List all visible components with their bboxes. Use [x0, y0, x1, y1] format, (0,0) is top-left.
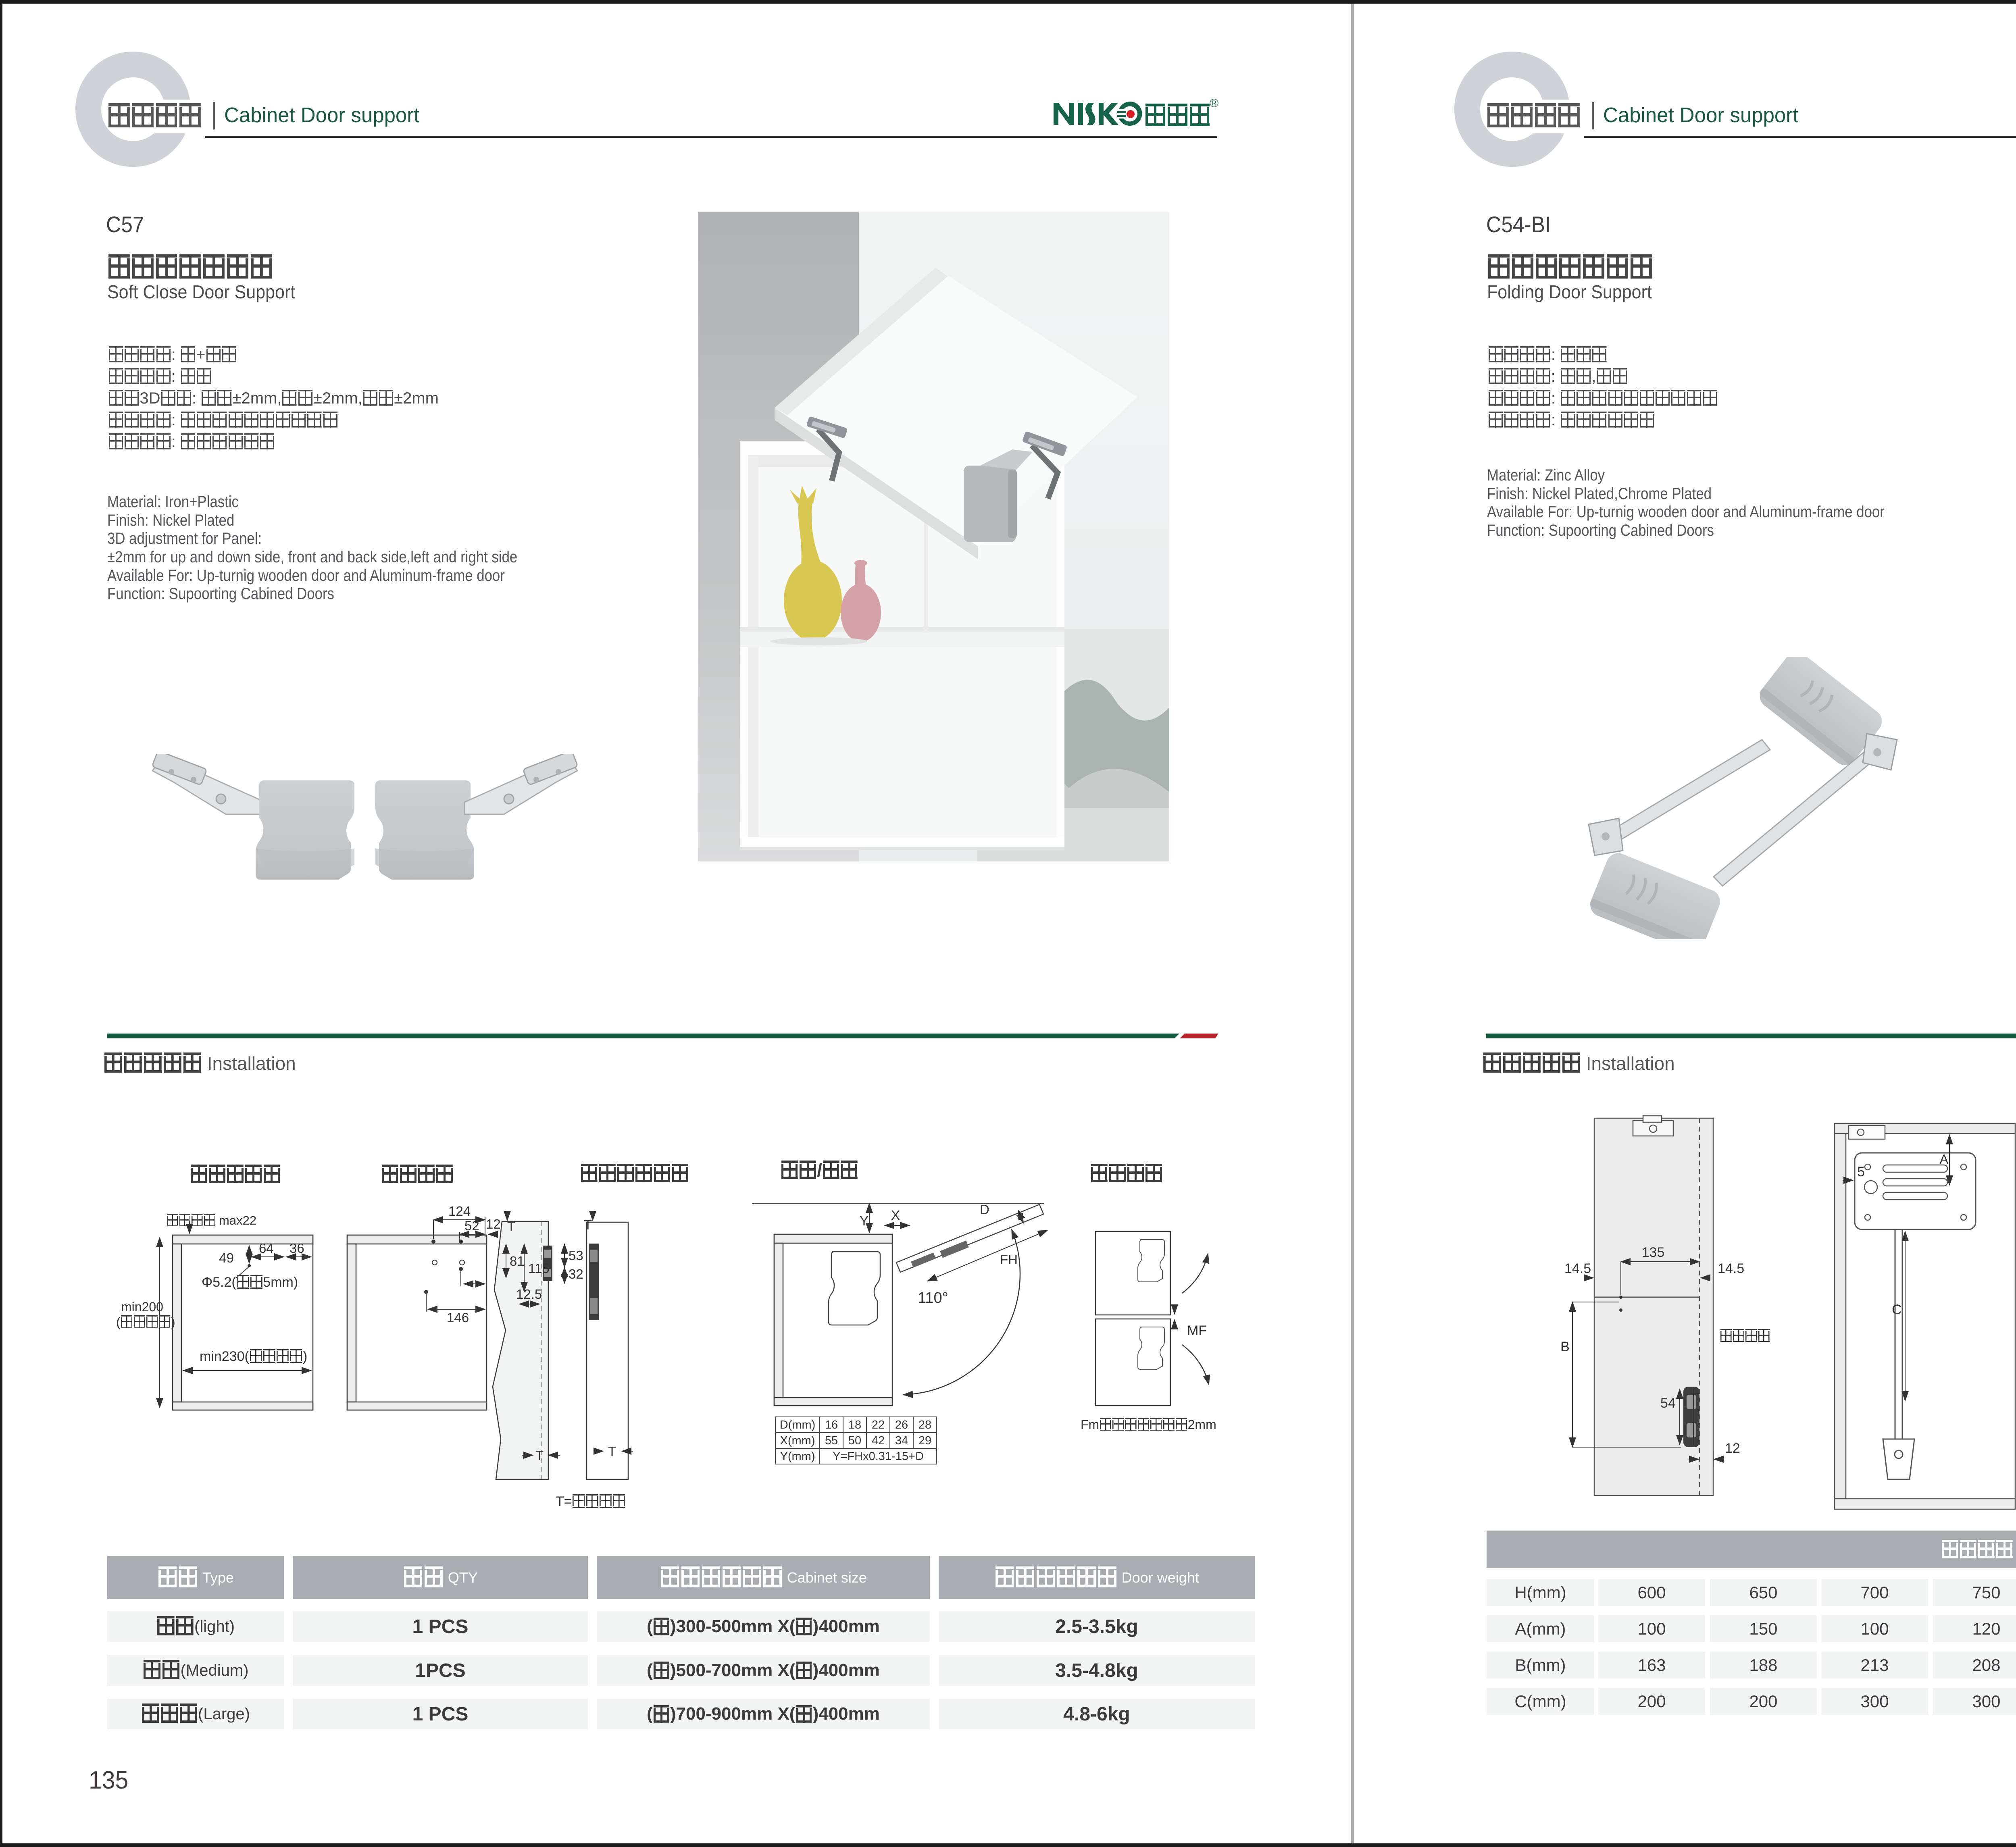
svg-text:Y=FHx0.31-15+D: Y=FHx0.31-15+D	[833, 1450, 924, 1463]
svg-text:36: 36	[289, 1241, 304, 1256]
svg-text:54: 54	[1660, 1396, 1676, 1411]
svg-text:55: 55	[825, 1434, 838, 1447]
svg-text:C: C	[1892, 1302, 1902, 1317]
svg-text:12.5: 12.5	[516, 1287, 542, 1302]
svg-text:B: B	[1560, 1339, 1570, 1354]
svg-text:29: 29	[918, 1434, 931, 1447]
svg-text:T: T	[584, 1217, 592, 1232]
svg-text:T: T	[507, 1219, 515, 1234]
svg-text:X(mm): X(mm)	[780, 1434, 815, 1447]
svg-text:135: 135	[1642, 1245, 1665, 1260]
svg-text:81: 81	[510, 1254, 525, 1269]
svg-text:MF: MF	[1187, 1323, 1207, 1338]
svg-text:32: 32	[569, 1267, 583, 1281]
svg-text:D: D	[980, 1202, 989, 1217]
svg-text:5: 5	[1857, 1164, 1865, 1179]
svg-text:12: 12	[486, 1217, 501, 1231]
svg-text:X: X	[891, 1208, 900, 1223]
svg-text:124: 124	[448, 1204, 471, 1219]
svg-text:Y(mm): Y(mm)	[780, 1450, 815, 1463]
svg-text:T: T	[535, 1448, 544, 1463]
svg-text:115: 115	[528, 1261, 550, 1276]
svg-text:16: 16	[825, 1419, 838, 1431]
svg-text:FH: FH	[1000, 1252, 1018, 1267]
svg-text:146: 146	[447, 1310, 469, 1325]
svg-text:49: 49	[219, 1250, 234, 1265]
svg-text:110°: 110°	[918, 1290, 948, 1306]
svg-text:34: 34	[895, 1434, 908, 1447]
svg-text:12: 12	[1725, 1441, 1740, 1456]
svg-text:50: 50	[848, 1434, 861, 1447]
svg-text:26: 26	[895, 1419, 908, 1431]
svg-text:22: 22	[872, 1419, 885, 1431]
svg-text:28: 28	[918, 1419, 931, 1431]
svg-text:52: 52	[464, 1218, 479, 1233]
svg-text:64: 64	[259, 1241, 274, 1256]
svg-text:53: 53	[569, 1248, 583, 1263]
svg-text:18: 18	[848, 1419, 861, 1431]
svg-text:Y: Y	[860, 1213, 868, 1228]
svg-text:14.5: 14.5	[1718, 1261, 1744, 1276]
svg-text:42: 42	[872, 1434, 885, 1447]
svg-text:T: T	[608, 1444, 616, 1459]
svg-text:D(mm): D(mm)	[780, 1419, 816, 1431]
svg-text:14.5: 14.5	[1564, 1261, 1591, 1276]
svg-text:A: A	[1939, 1152, 1949, 1167]
